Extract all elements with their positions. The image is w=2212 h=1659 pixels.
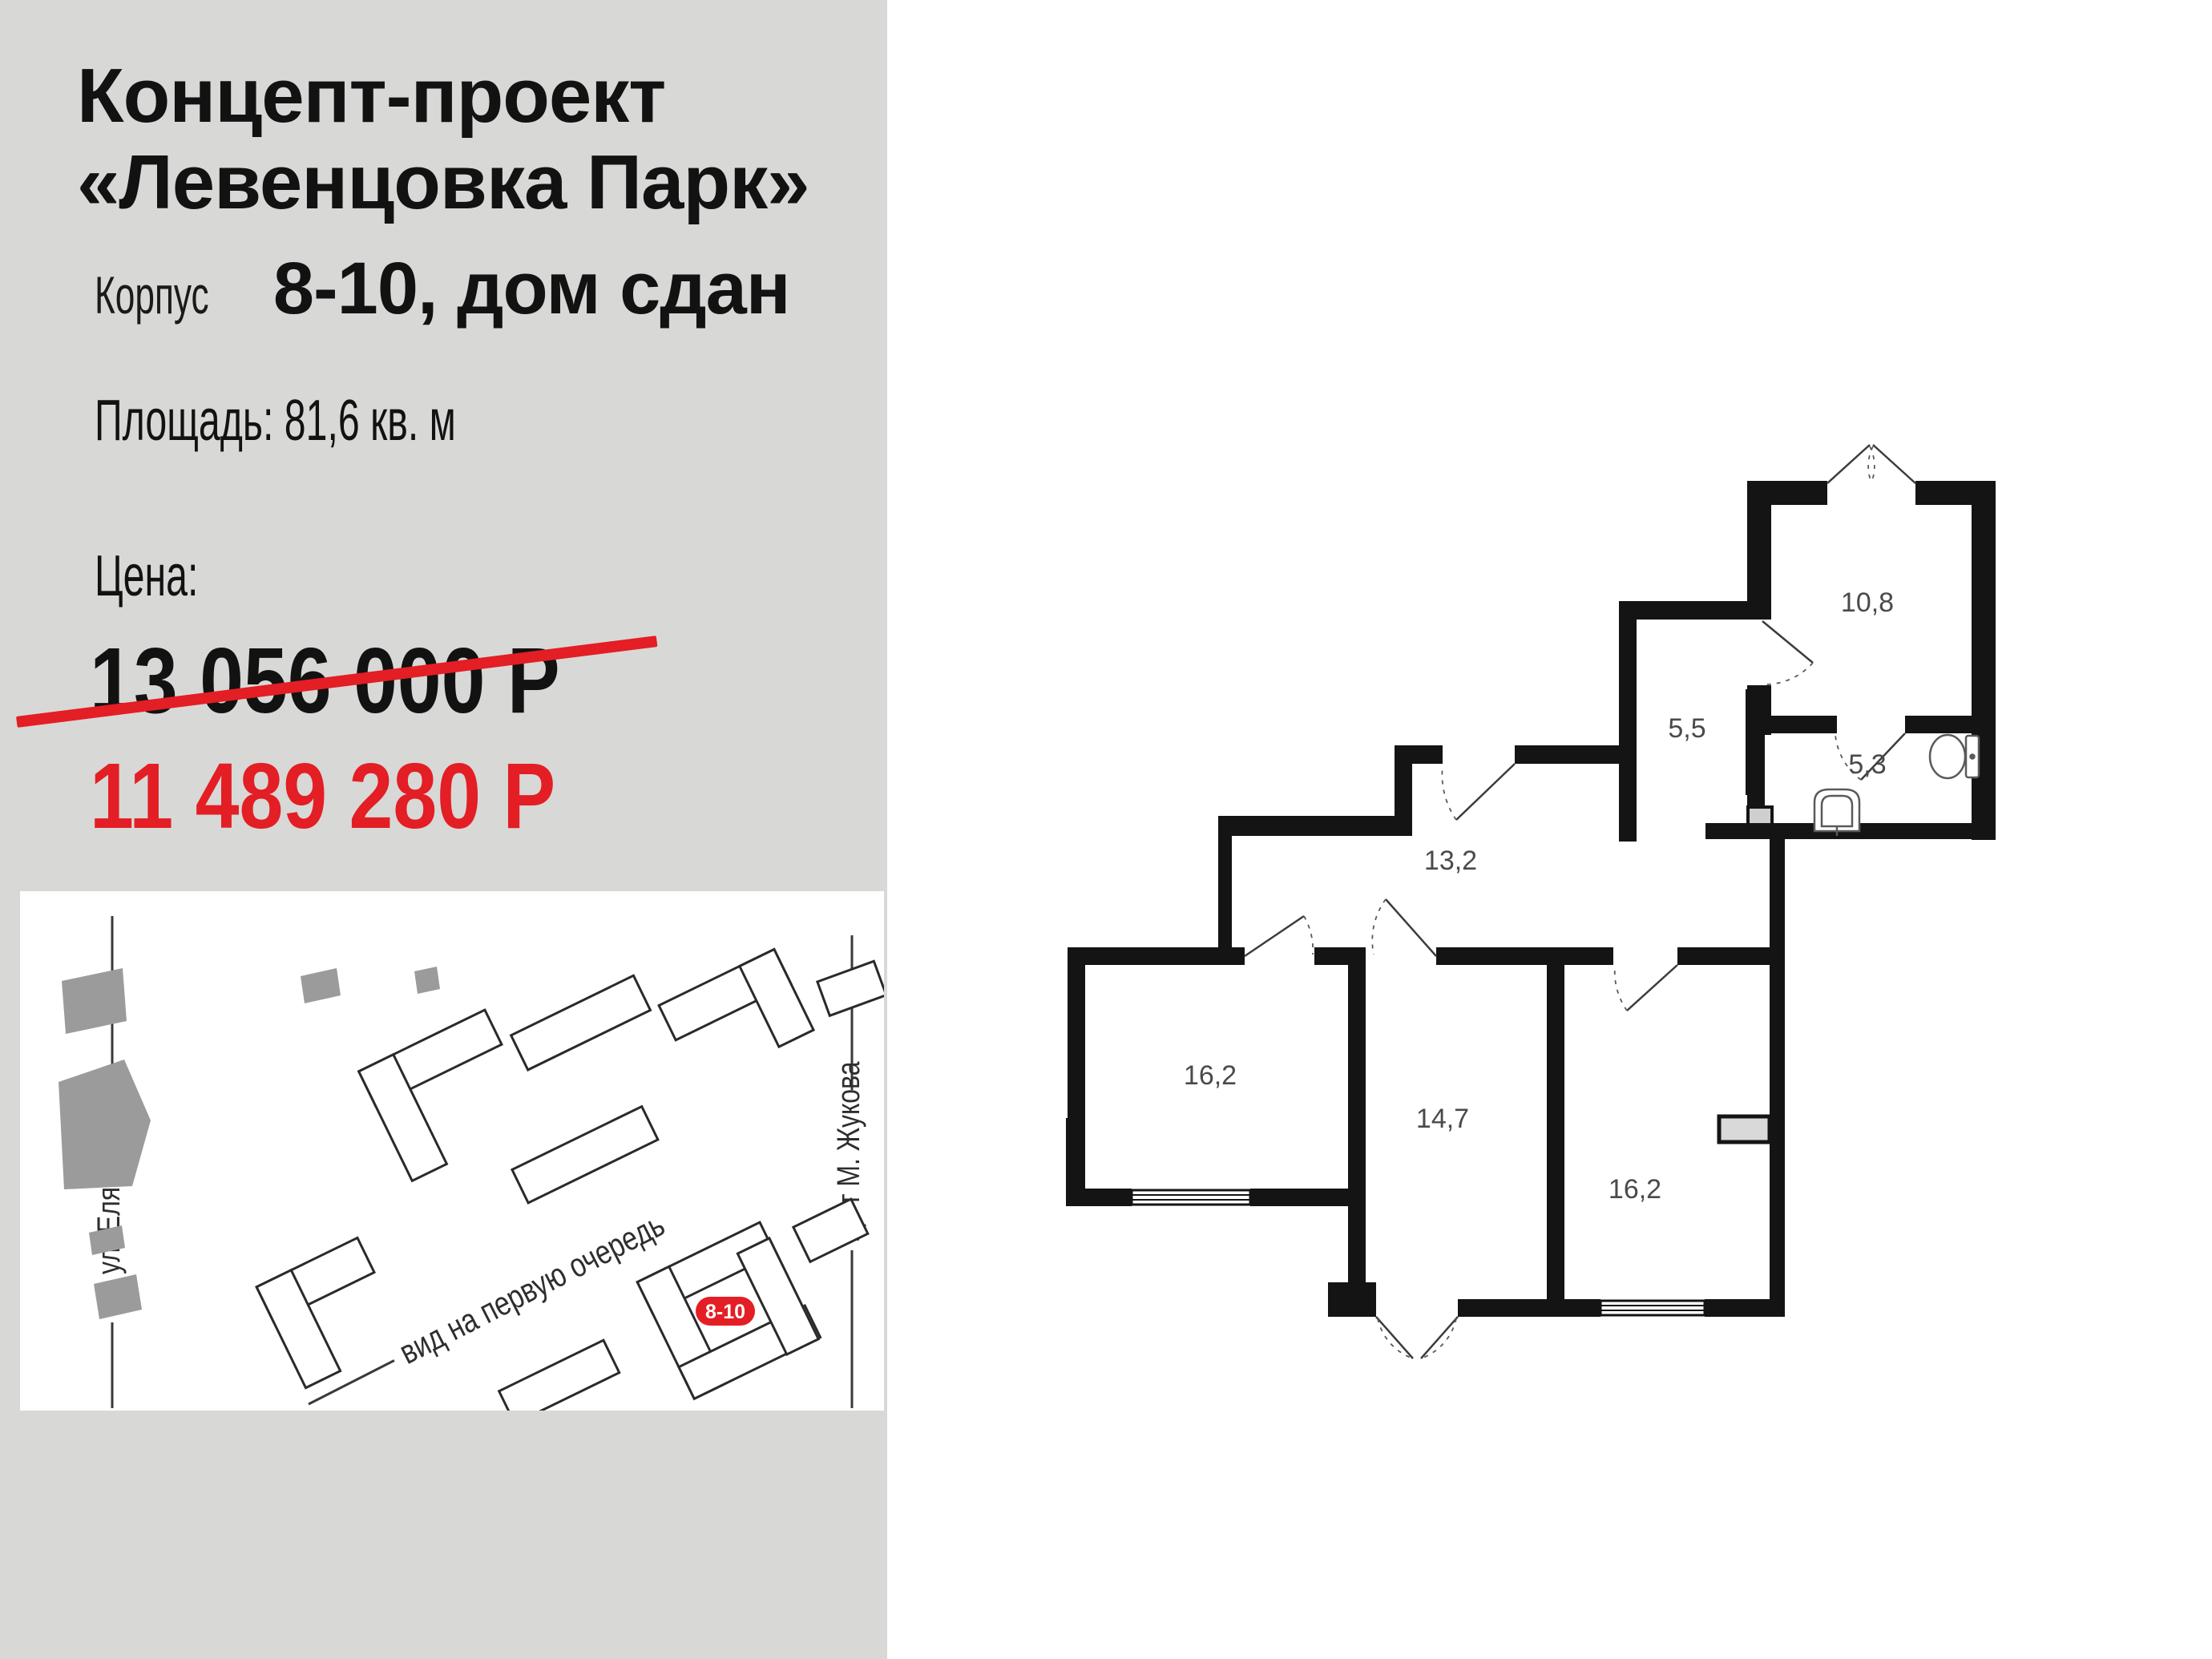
- building-label: Корпус: [95, 264, 209, 325]
- area-line: Площадь: 81,6 кв. м: [95, 388, 634, 454]
- label-room-16-2-left: 16,2: [1184, 1060, 1237, 1091]
- niche-box: [1719, 1116, 1770, 1142]
- label-hall-5-5: 5,5: [1668, 713, 1705, 744]
- view-note: вид на первую очередь: [300, 1206, 671, 1411]
- building-row: Корпус 8-10, дом сдан: [95, 247, 896, 331]
- label-room-14-7: 14,7: [1416, 1104, 1469, 1134]
- label-room-10-8: 10,8: [1841, 587, 1894, 618]
- sink-icon: [1814, 789, 1859, 836]
- window-left-room: [1132, 1190, 1250, 1205]
- toilet-icon: [1930, 735, 1979, 778]
- slide: { "sidebar": { "title": "Концепт-проект\…: [0, 0, 2212, 1659]
- label-corridor-13-2: 13,2: [1424, 846, 1477, 876]
- shaft-box: [1748, 807, 1772, 825]
- page-title: Концепт-проект «Левенцовка Парк»: [77, 53, 809, 227]
- window-right-room: [1600, 1301, 1705, 1315]
- view-note-label: вид на первую очередь: [394, 1206, 671, 1372]
- new-price: 11 489 280 Р: [90, 742, 638, 850]
- site-map: ул. Еляна пр-т М. Жукова: [20, 891, 884, 1411]
- label-room-16-2-right: 16,2: [1609, 1174, 1661, 1205]
- floor-plan-drawing: 10,8 5,5 5,3 13,2 16,2 14,7 16,2: [1066, 437, 2052, 1382]
- project-buildings: [256, 949, 884, 1411]
- floor-plan: 10,8 5,5 5,3 13,2 16,2 14,7 16,2: [1066, 437, 2052, 1382]
- building-badge-label: 8-10: [705, 1301, 745, 1323]
- building-badge: 8-10: [696, 1297, 755, 1326]
- label-bathroom-5-3: 5,3: [1848, 749, 1886, 780]
- price-label: Цена:: [95, 543, 249, 609]
- sidebar: Концепт-проект «Левенцовка Парк» Корпус …: [0, 0, 887, 1659]
- building-value: 8-10, дом сдан: [273, 247, 790, 331]
- door-leaves: [1245, 445, 1915, 1358]
- site-map-card: ул. Еляна пр-т М. Жукова: [20, 891, 884, 1411]
